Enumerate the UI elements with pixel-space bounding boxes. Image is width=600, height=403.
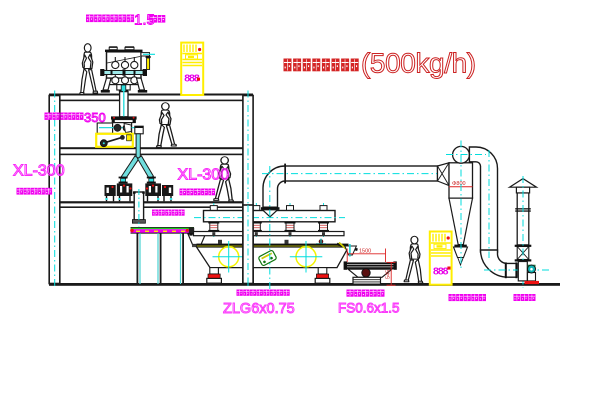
svg-text:888: 888 (433, 266, 449, 278)
svg-text:Φ800: Φ800 (452, 181, 466, 187)
svg-text:350: 350 (84, 110, 106, 125)
svg-text:ZLG6x0.75: ZLG6x0.75 (223, 301, 295, 317)
svg-text:XL-300: XL-300 (178, 167, 230, 184)
svg-text:FS0.6x1.5: FS0.6x1.5 (338, 301, 400, 316)
svg-text:545: 545 (385, 270, 391, 279)
svg-text:1.5: 1.5 (134, 12, 155, 29)
svg-text:(500kg/h): (500kg/h) (361, 48, 476, 79)
svg-text:1500: 1500 (359, 249, 371, 255)
svg-text:XL-300: XL-300 (13, 163, 65, 180)
